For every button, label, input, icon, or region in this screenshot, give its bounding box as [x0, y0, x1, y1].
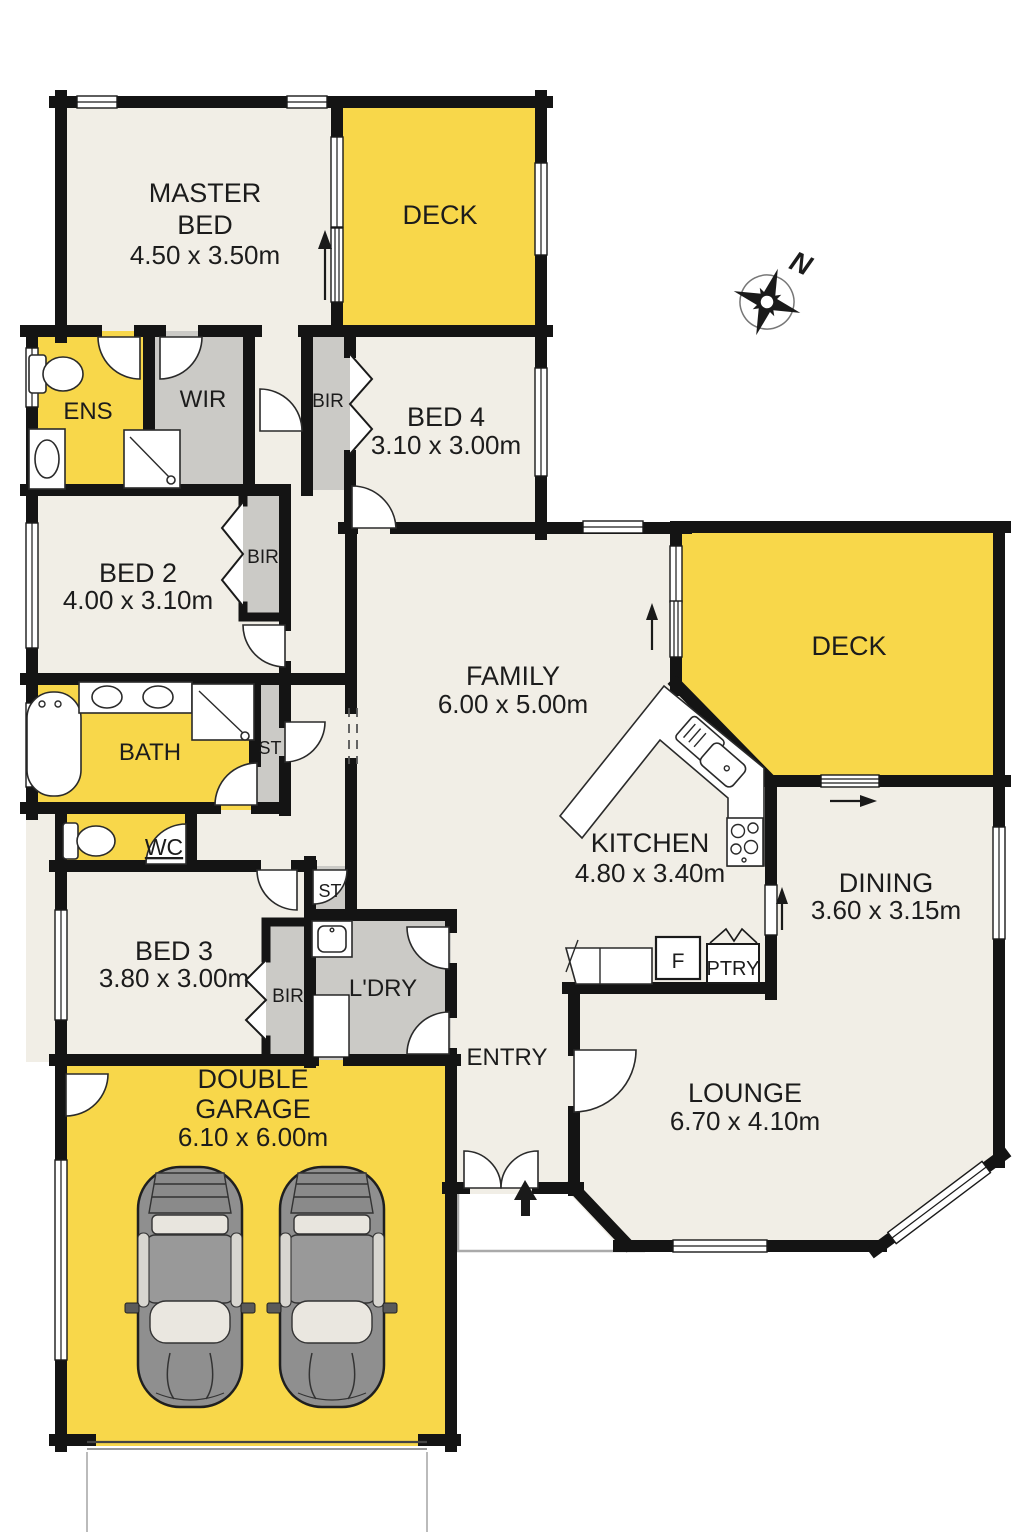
shower-ens-icon — [124, 430, 180, 488]
slider-master-deck — [331, 228, 343, 302]
window-garage-left — [55, 1160, 67, 1360]
compass-rose-icon: N — [723, 245, 817, 346]
car-right-icon — [267, 1167, 397, 1407]
compass-north-label: N — [785, 245, 817, 282]
label-lounge: LOUNGE — [688, 1078, 802, 1108]
label-kitchen: KITCHEN — [591, 828, 710, 858]
label-bir-bed2: BIR — [247, 547, 279, 568]
label-st-bath: ST — [258, 738, 281, 758]
bathtub-icon — [27, 692, 81, 796]
window-dining-right — [993, 827, 1005, 939]
vanity-bath-icon — [79, 682, 192, 713]
slider-family-deck — [670, 601, 682, 657]
dims-garage: 6.10 x 6.00m — [178, 1122, 328, 1152]
floor-plan-page: N MASTER BED 4.50 x 3.50m DECK ENS WIR B… — [0, 0, 1024, 1536]
toilet-ens-icon — [29, 355, 83, 393]
label-wc: WC — [145, 834, 183, 860]
label-bed2: BED 2 — [99, 558, 177, 588]
label-master-bed-1: MASTER — [149, 178, 262, 208]
car-left-icon — [125, 1167, 255, 1407]
label-bed4: BED 4 — [407, 402, 485, 432]
dims-kitchen: 4.80 x 3.40m — [575, 858, 725, 888]
label-entry: ENTRY — [467, 1044, 548, 1071]
label-garage-2: GARAGE — [195, 1094, 311, 1124]
dims-master-bed: 4.50 x 3.50m — [130, 240, 280, 270]
label-ens: ENS — [63, 398, 112, 425]
dims-bed2: 4.00 x 3.10m — [63, 585, 213, 615]
window-family-deck — [670, 546, 682, 602]
label-bath: BATH — [119, 739, 181, 766]
window-family-top — [583, 521, 643, 533]
label-bir-bed3: BIR — [272, 986, 304, 1007]
basin-ens-icon — [29, 429, 65, 489]
floor-plan-svg: N MASTER BED 4.50 x 3.50m DECK ENS WIR B… — [0, 0, 1024, 1536]
window-lounge-bottom — [673, 1240, 767, 1252]
dims-bed3: 3.80 x 3.00m — [99, 963, 249, 993]
dims-bed4: 3.10 x 3.00m — [371, 430, 521, 460]
label-fridge: F — [672, 950, 685, 973]
window-master-top-2 — [287, 96, 327, 108]
toilet-wc-icon — [63, 823, 115, 859]
window-bed4-right — [535, 368, 547, 476]
dims-dining: 3.60 x 3.15m — [811, 895, 961, 925]
window-master-top-1 — [77, 96, 117, 108]
label-st-hall: ST — [318, 881, 341, 901]
shower-bath-icon — [192, 684, 254, 740]
label-wir: WIR — [180, 386, 227, 413]
laundry-tub-icon — [312, 921, 352, 957]
opening-kitchen-dining — [765, 885, 777, 935]
dims-lounge: 6.70 x 4.10m — [670, 1106, 820, 1136]
label-dining: DINING — [839, 868, 934, 898]
label-bed3: BED 3 — [135, 936, 213, 966]
door-laundry-external — [313, 995, 349, 1057]
label-garage-1: DOUBLE — [197, 1064, 308, 1094]
cooktop-icon — [727, 818, 763, 866]
window-deck-right-wall — [535, 163, 547, 255]
label-deck-right: DECK — [811, 631, 886, 661]
window-bed3-left — [55, 910, 67, 1020]
label-master-bed-2: BED — [177, 210, 233, 240]
slider-deck-dining — [821, 775, 879, 787]
window-master-deck — [331, 137, 343, 227]
label-laundry: L'DRY — [349, 975, 417, 1002]
label-deck-top: DECK — [402, 200, 477, 230]
label-family: FAMILY — [466, 661, 560, 691]
label-pantry: PTRY — [707, 958, 760, 980]
label-bir-bed4: BIR — [312, 391, 344, 412]
dims-family: 6.00 x 5.00m — [438, 689, 588, 719]
window-bed2-left — [26, 523, 38, 648]
